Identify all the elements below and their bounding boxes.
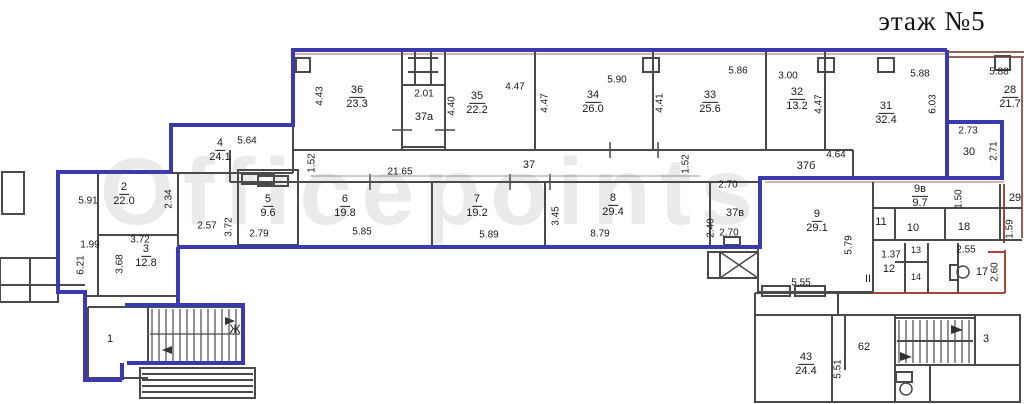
room-label-10: 10: [907, 222, 919, 234]
room-label-62: 62: [858, 341, 870, 353]
dim-5-64: 5.64: [237, 136, 256, 147]
dim-2-60: 2.60: [990, 262, 1001, 281]
room-number: 9в: [912, 183, 928, 197]
room-label-28: 2821.7: [999, 84, 1020, 110]
room-number: 28: [1002, 84, 1018, 98]
room-number: 36: [349, 84, 365, 98]
dim-5-88-a: 5.88: [910, 69, 929, 80]
room-number: 5: [263, 193, 273, 207]
dim-1-37: 1.37: [881, 250, 900, 261]
room-number: 2: [119, 181, 129, 195]
room-label-7: 719.2: [466, 193, 487, 219]
room-area: 22.2: [466, 104, 487, 117]
room-label-33: 3325.6: [699, 89, 720, 115]
room-number: 33: [702, 89, 718, 103]
dim-4-47-a: 4.47: [505, 82, 524, 93]
dim-6-21: 6.21: [76, 255, 87, 274]
room-area: 12.8: [135, 257, 156, 270]
stairs-arrows: [162, 317, 963, 361]
dim-1-52-a: 1.52: [307, 153, 318, 172]
room-area: 13.2: [786, 100, 807, 113]
dim-4-43: 4.43: [315, 86, 326, 105]
corridor-label: 37: [523, 159, 535, 171]
room-label-31: 3132.4: [875, 100, 896, 126]
dim-2-70-b: 2.70: [719, 228, 738, 239]
dim-1-99: 1.99: [80, 240, 99, 251]
room-number: 34: [585, 89, 601, 103]
stairs-left-treads: [150, 309, 240, 361]
outer-wall-red-thin: [293, 54, 1004, 182]
room-label-9: 929.1: [806, 208, 827, 234]
dim-4-40: 4.40: [447, 96, 458, 115]
dim-5-88-b: 5.88: [989, 67, 1008, 78]
floor-plan-drawing: [0, 0, 1024, 404]
room-area: 29.1: [806, 222, 827, 235]
room-area: 24.4: [795, 365, 816, 378]
dim-4-64: 4.64: [826, 150, 845, 161]
room-number: 32: [789, 86, 805, 100]
room-number: 31: [878, 100, 894, 114]
room-label-34: 3426.0: [582, 89, 603, 115]
room-label-13: 13: [911, 245, 921, 255]
dim-4-47-b: 4.47: [540, 93, 551, 112]
dim-5-86: 5.86: [728, 66, 747, 77]
room-number: 8: [608, 192, 618, 206]
room-area: 9.6: [260, 207, 275, 220]
room-number: 7: [472, 193, 482, 207]
room-label-18: 18: [958, 221, 970, 233]
dim-5-91: 5.91: [78, 196, 97, 207]
room-label-5: 59.6: [260, 193, 275, 219]
room-area: 21.7: [999, 98, 1020, 111]
dim-6-03: 6.03: [928, 94, 939, 113]
room-label-1: 1: [107, 333, 113, 345]
dim-3-68: 3.68: [115, 254, 126, 273]
dim-4-41: 4.41: [655, 93, 666, 112]
room-label-12: 12: [883, 263, 895, 275]
room-area: 9.7: [912, 197, 927, 210]
room-area: 25.6: [699, 103, 720, 116]
dim-1-52-b: 1.52: [681, 154, 692, 173]
room-label-29: 29: [1009, 192, 1021, 204]
dim-2-34: 2.34: [164, 189, 175, 208]
room-label-30: 30: [963, 146, 975, 158]
dim-3-00: 3.00: [778, 71, 797, 82]
room-area: 22.0: [113, 195, 134, 208]
room-label-37b: 37б: [797, 160, 816, 172]
room-area: 19.2: [466, 207, 487, 220]
dim-2-01: 2.01: [414, 89, 433, 100]
room-label-6: 619.8: [334, 193, 355, 219]
room-number: 43: [798, 351, 814, 365]
dim-1-50: 1.50: [954, 189, 965, 208]
room-label-2: 222.0: [113, 181, 134, 207]
room-number: 4: [215, 137, 225, 151]
room-number: 35: [469, 90, 485, 104]
boundary-blue: [58, 50, 1002, 380]
room-number: 6: [340, 193, 350, 207]
dim-8-79: 8.79: [590, 229, 609, 240]
dim-5-89: 5.89: [479, 230, 498, 241]
room-label-3: 312.8: [135, 243, 156, 269]
room-number: 9: [812, 208, 822, 222]
dim-2-57: 2.57: [197, 221, 216, 232]
elevator-icon: [720, 252, 758, 278]
room-label-36: 3623.3: [346, 84, 367, 110]
dim-21-65: 21.65: [387, 167, 412, 178]
room-area: 26.0: [582, 103, 603, 116]
dim-2-71: 2.71: [989, 141, 1000, 160]
boundary-brown: [947, 52, 1024, 238]
room-label-4: 424.1: [209, 137, 230, 163]
dim-2-73: 2.73: [958, 126, 977, 137]
room-label-8: 829.4: [602, 192, 623, 218]
section-mark: II: [865, 273, 871, 285]
dim-1-59: 1.59: [1005, 219, 1016, 238]
room-area: 29.4: [602, 206, 623, 219]
stairs-right-label: 3: [983, 333, 989, 345]
room-label-11: 11: [875, 216, 886, 228]
room-label-35: 3522.2: [466, 90, 487, 116]
dim-3-72-b: 3.72: [224, 217, 235, 236]
room-area: 23.3: [346, 98, 367, 111]
dim-2-79: 2.79: [249, 229, 268, 240]
room-area: 24.1: [209, 151, 230, 164]
room-label-9v: 9в9.7: [912, 183, 928, 209]
dim-5-55: 5.55: [791, 278, 810, 289]
stairs-left-label: Ж: [229, 322, 240, 336]
dim-3-45: 3.45: [551, 206, 562, 225]
dim-5-51: 5.51: [833, 359, 844, 378]
room-area: 32.4: [875, 114, 896, 127]
dim-5-90: 5.90: [607, 75, 626, 86]
dim-5-79: 5.79: [844, 235, 855, 254]
room-label-37a: 37а: [415, 111, 433, 123]
room-area: 19.8: [334, 207, 355, 220]
dim-5-85: 5.85: [352, 227, 371, 238]
dim-2-55: 2.55: [956, 245, 975, 256]
dim-4-47-c: 4.47: [814, 94, 825, 113]
floor-plan: Officepoints этаж №5 3623.3 3522.2 3426.…: [0, 0, 1024, 404]
dim-2-70-a: 2.70: [718, 180, 737, 191]
dim-3-72-a: 3.72: [130, 235, 149, 246]
fixture-icon: [900, 383, 912, 395]
page-title: этаж №5: [840, 6, 1024, 37]
dim-2-40: 2.40: [706, 218, 717, 237]
room-label-14: 14: [911, 272, 921, 282]
room-label-43: 4324.4: [795, 351, 816, 377]
room-label-32: 3213.2: [786, 86, 807, 112]
room-label-17: 17: [976, 266, 988, 278]
room-label-37v: 37в: [726, 207, 744, 219]
